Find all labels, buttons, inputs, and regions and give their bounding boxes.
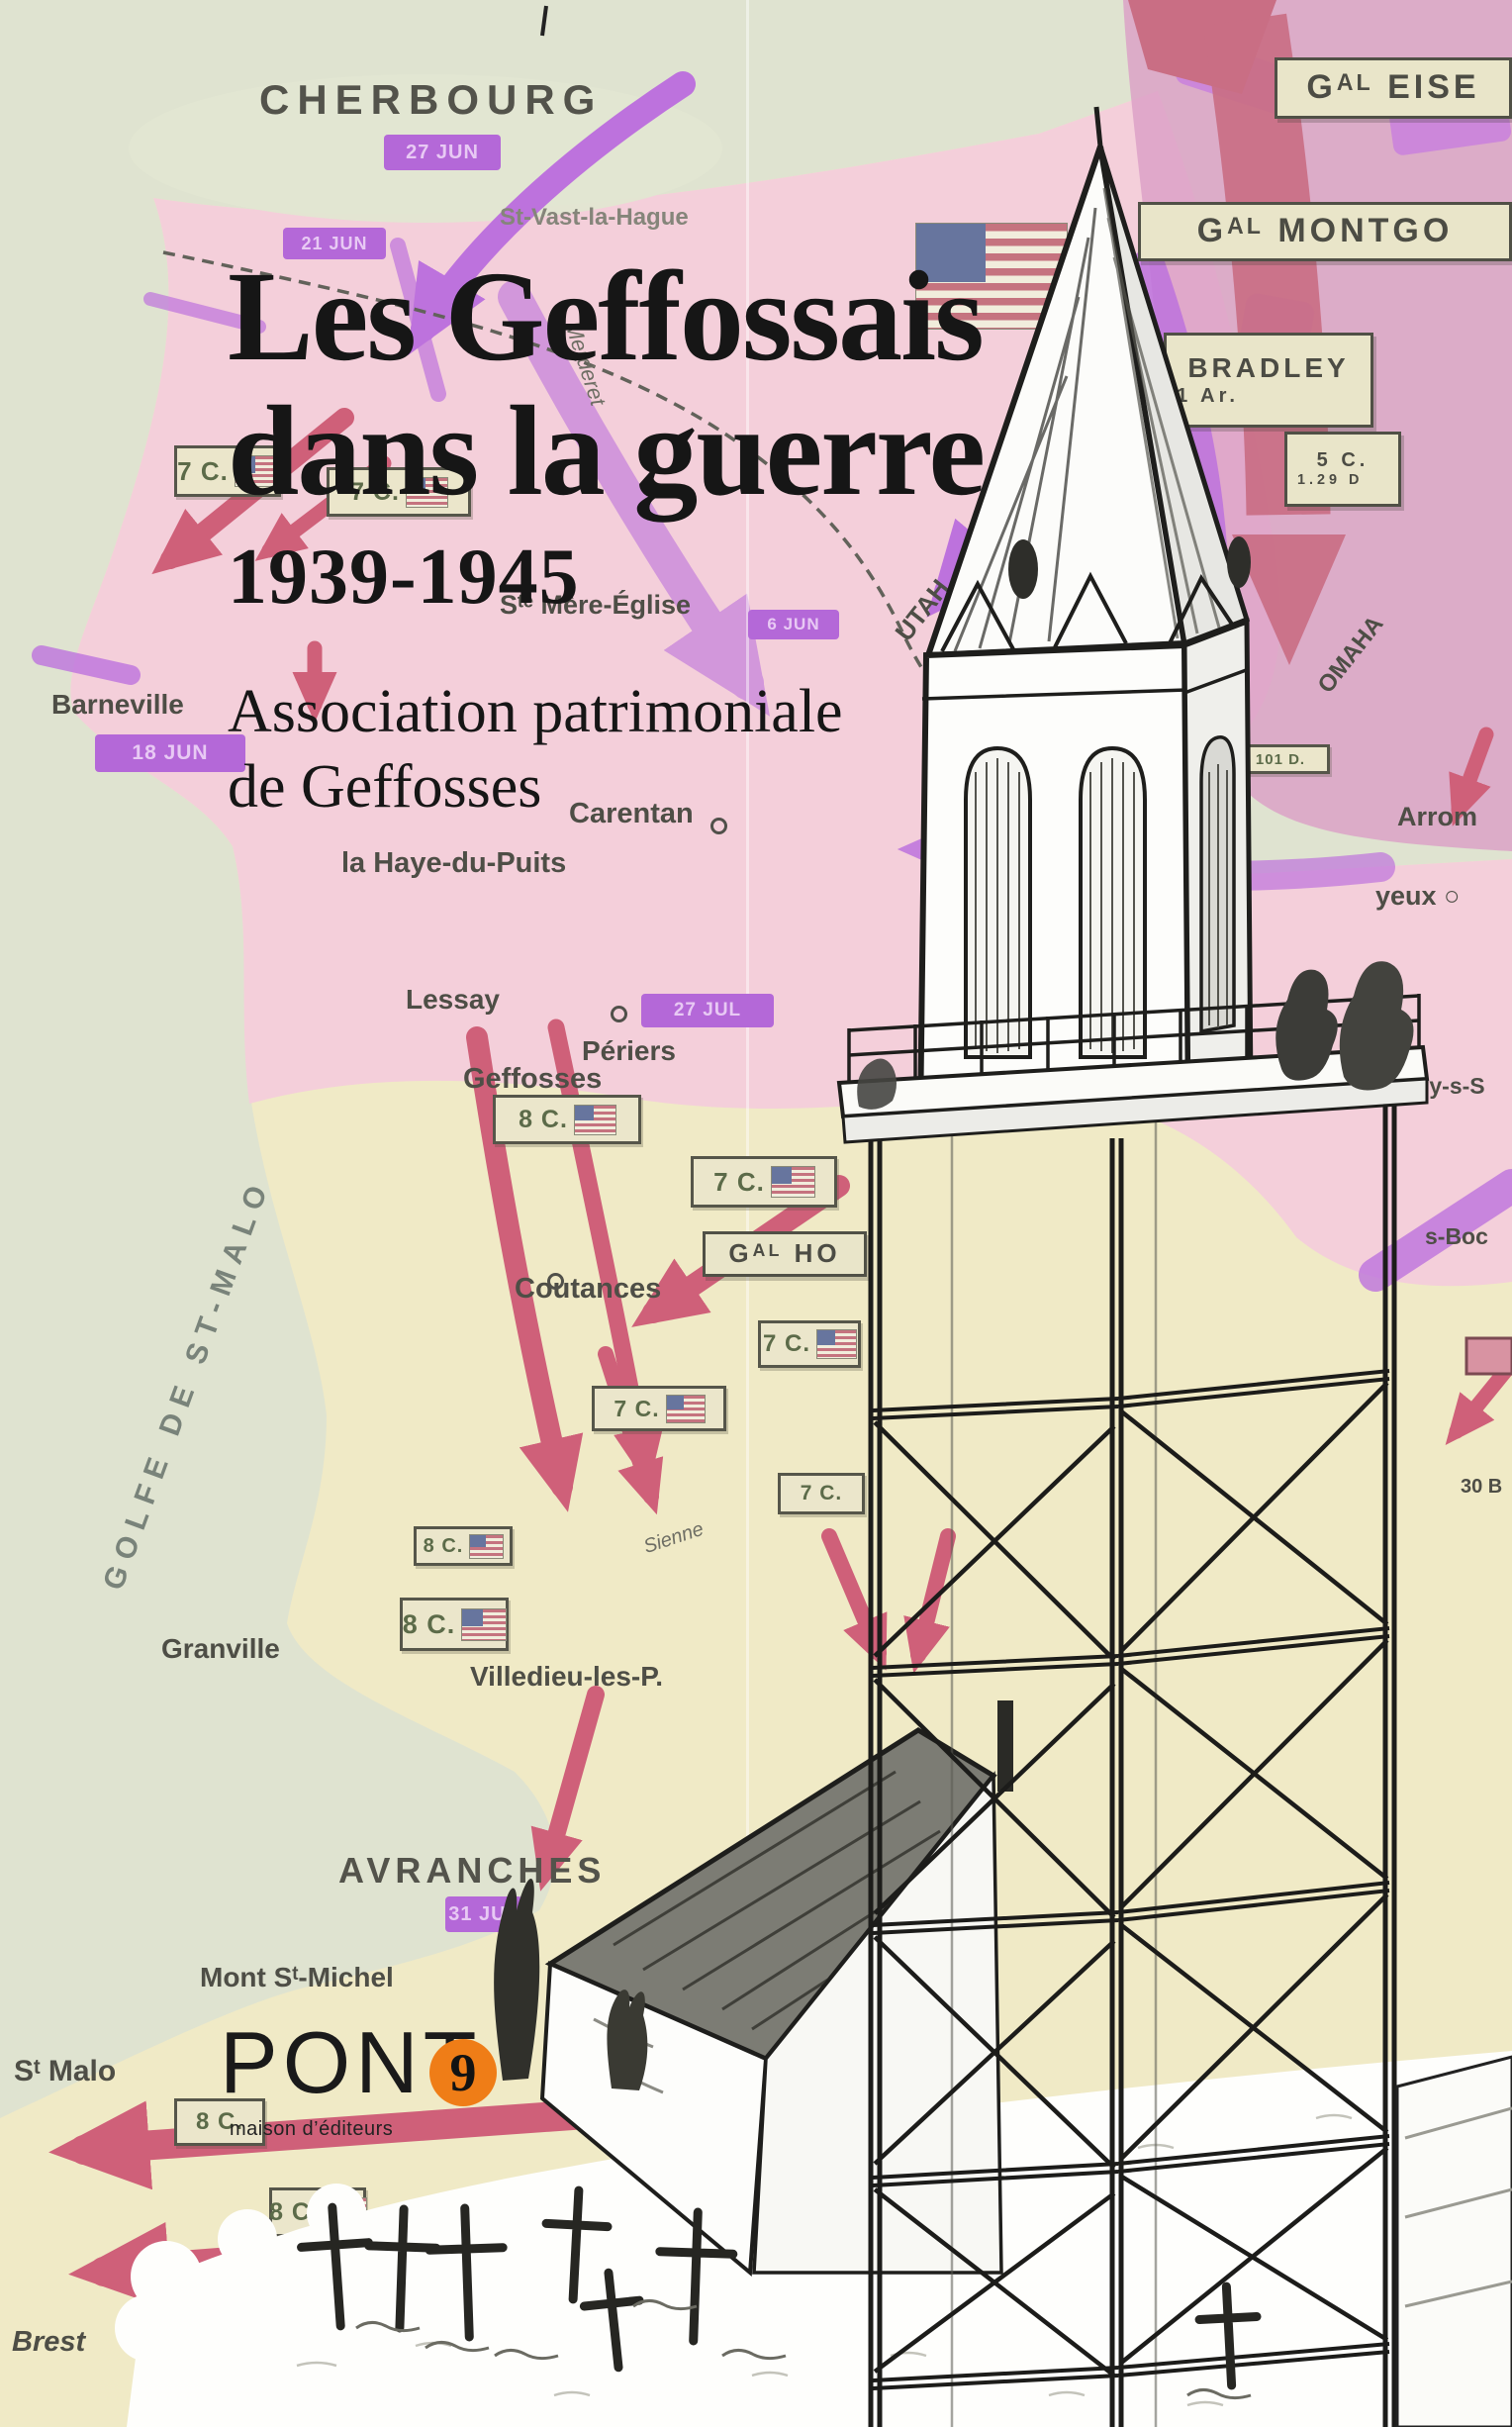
publisher-tagline: maison d’éditeurs — [230, 2118, 393, 2141]
publisher-logo: PONT 9 maison d’éditeurs — [220, 2019, 635, 2148]
author-line-2: de Geffosses — [228, 749, 984, 825]
sketch-mark — [542, 6, 546, 36]
publisher-number: 9 — [450, 2046, 477, 2099]
title-years: 1939-1945 — [228, 533, 984, 623]
author-line-1: Association patrimoniale — [228, 674, 984, 749]
title-line-2: dans la guerre — [228, 384, 984, 519]
book-cover: CHERBOURGSt-Vast-la-HagueMerderetBarnevi… — [0, 0, 1512, 2427]
title-line-1: Les Geffossais — [228, 249, 984, 384]
publisher-number-badge: 9 — [429, 2039, 497, 2106]
title-block: Les Geffossais dans la guerre 1939-1945 … — [228, 249, 984, 825]
church-nave — [1397, 2057, 1512, 2427]
